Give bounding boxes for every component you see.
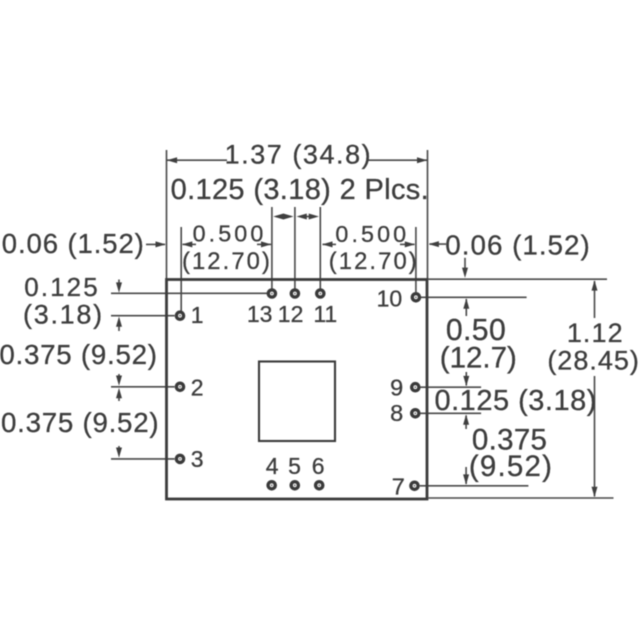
svg-text:5: 5 bbox=[288, 453, 301, 479]
svg-text:0.500: 0.500 bbox=[335, 221, 409, 247]
svg-text:0.06 (1.52): 0.06 (1.52) bbox=[2, 228, 145, 259]
svg-text:0.375 (9.52): 0.375 (9.52) bbox=[1, 407, 159, 438]
svg-text:0.125 (3.18) 2 Plcs.: 0.125 (3.18) 2 Plcs. bbox=[171, 174, 429, 206]
svg-text:0.06 (1.52): 0.06 (1.52) bbox=[445, 229, 590, 260]
svg-text:(28.45): (28.45) bbox=[547, 346, 640, 376]
svg-text:7: 7 bbox=[392, 473, 405, 499]
svg-text:10: 10 bbox=[377, 285, 403, 311]
svg-text:1: 1 bbox=[191, 302, 204, 328]
svg-text:(12.70): (12.70) bbox=[329, 248, 419, 275]
svg-text:0.375 (9.52): 0.375 (9.52) bbox=[0, 339, 158, 370]
svg-text:(12.7): (12.7) bbox=[440, 342, 517, 375]
svg-text:4: 4 bbox=[266, 453, 279, 479]
svg-text:12: 12 bbox=[278, 301, 304, 327]
svg-text:11: 11 bbox=[313, 301, 337, 327]
svg-text:6: 6 bbox=[312, 453, 325, 479]
svg-text:2: 2 bbox=[191, 375, 204, 401]
svg-text:13: 13 bbox=[247, 301, 273, 327]
svg-text:(3.18): (3.18) bbox=[23, 300, 104, 330]
svg-text:0.125 (3.18): 0.125 (3.18) bbox=[435, 385, 597, 417]
svg-text:(9.52): (9.52) bbox=[469, 450, 553, 483]
svg-text:8: 8 bbox=[390, 400, 403, 426]
svg-text:9: 9 bbox=[390, 374, 403, 400]
svg-text:0.500: 0.500 bbox=[193, 220, 267, 246]
svg-text:(12.70): (12.70) bbox=[182, 248, 272, 275]
svg-text:3: 3 bbox=[191, 446, 204, 472]
svg-text:0.125: 0.125 bbox=[24, 272, 100, 302]
svg-text:1.12: 1.12 bbox=[567, 318, 624, 348]
svg-text:1.37 (34.8): 1.37 (34.8) bbox=[225, 140, 373, 170]
